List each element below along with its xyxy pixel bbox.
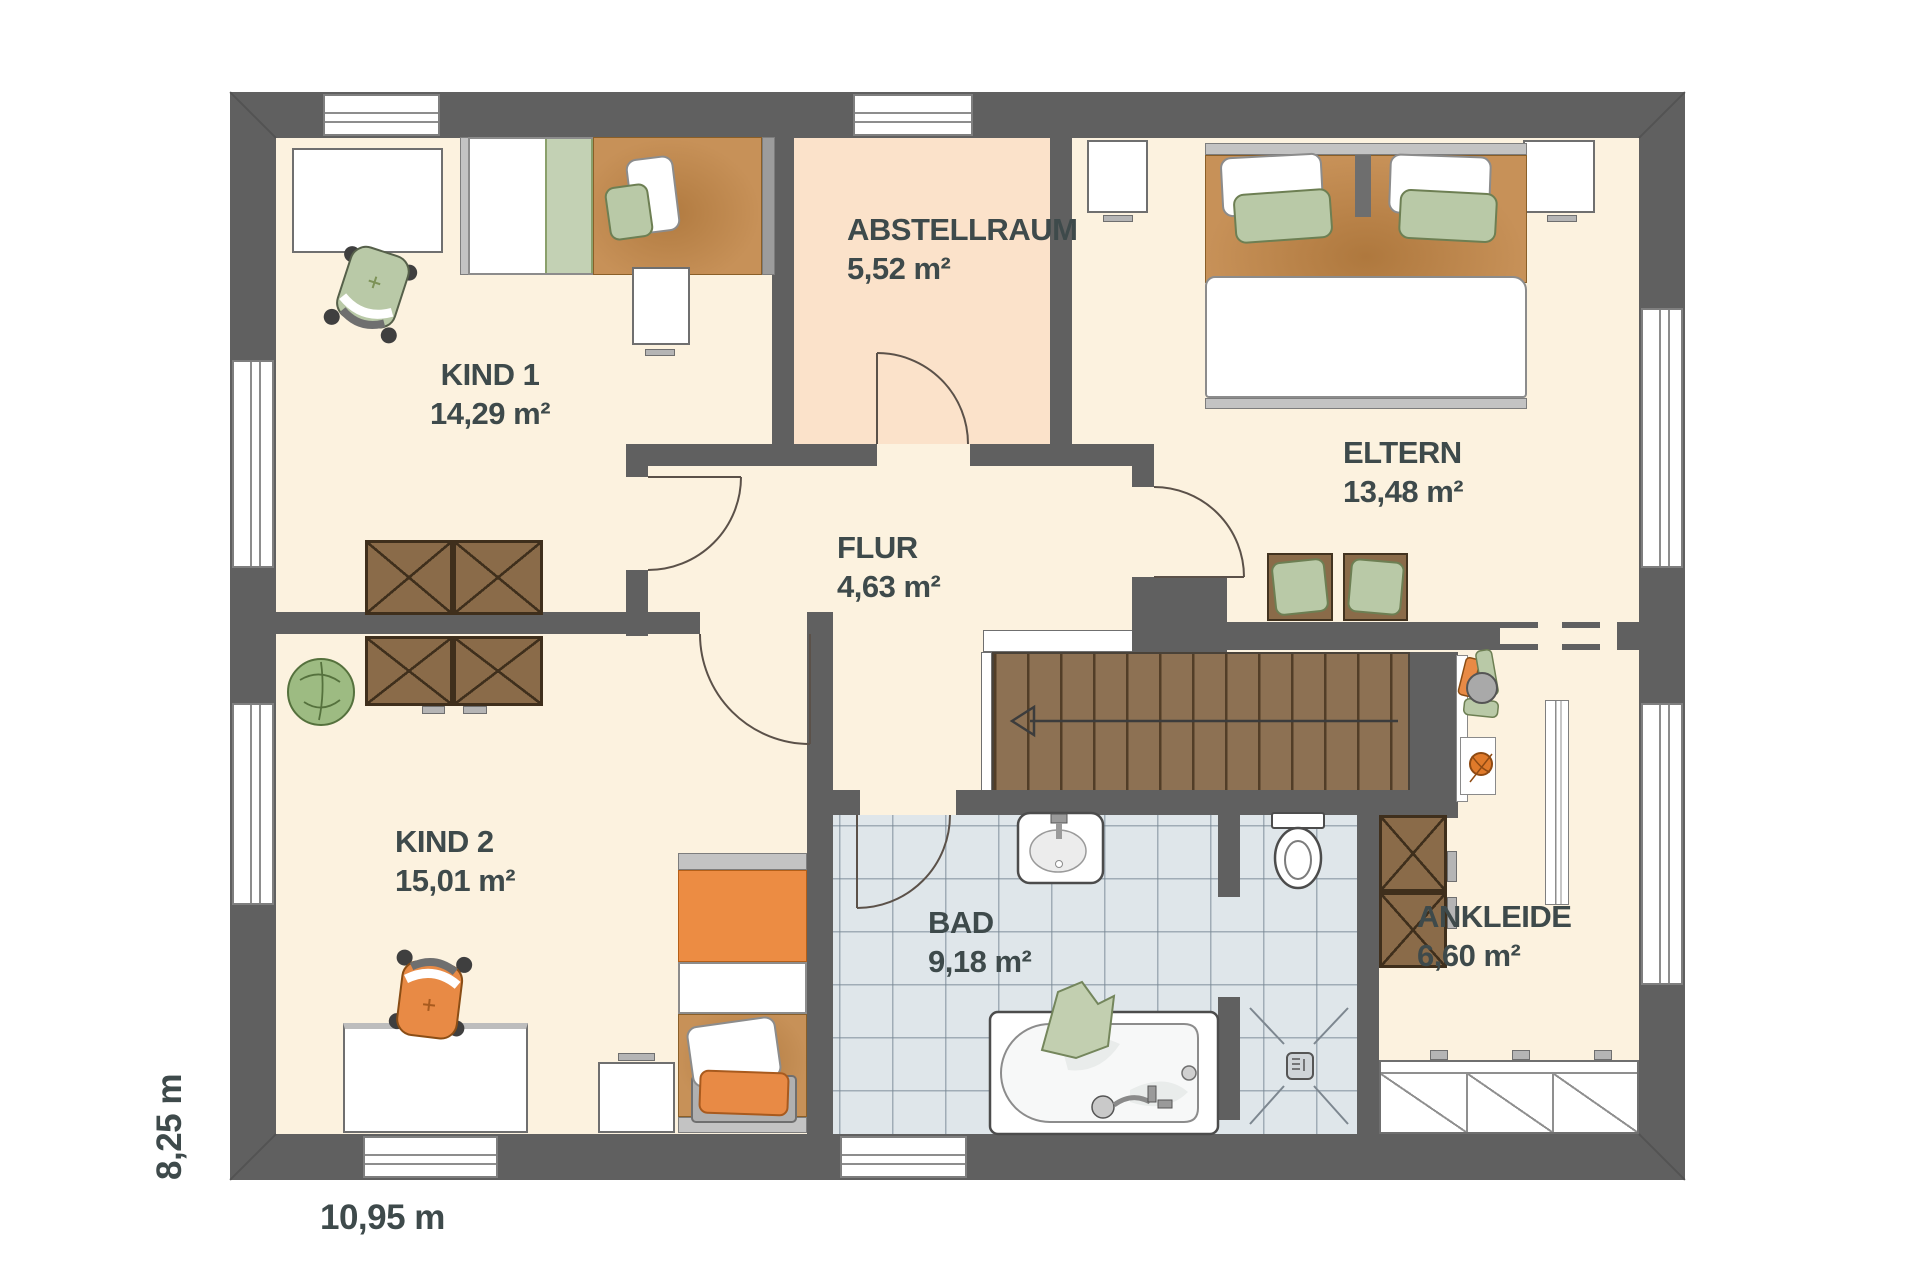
nightstand xyxy=(598,1062,675,1133)
wall xyxy=(1227,622,1500,650)
bed-headboard xyxy=(1205,143,1527,155)
mattress-divider xyxy=(1355,155,1371,217)
room-area: 13,48 m² xyxy=(1343,472,1463,511)
wardrobe-icon xyxy=(1379,815,1447,892)
room-area: 14,29 m² xyxy=(430,394,550,433)
room-name: KIND 1 xyxy=(430,355,550,394)
wardrobe-icon xyxy=(365,636,453,706)
bed xyxy=(678,962,807,1014)
wall xyxy=(1218,997,1240,1120)
wall xyxy=(956,790,1458,815)
stairs-edge xyxy=(981,652,992,792)
bed-duvet xyxy=(1205,276,1527,398)
bed-head-area xyxy=(593,137,762,275)
bed-blanket xyxy=(545,139,593,273)
window-icon xyxy=(232,703,274,905)
window-icon xyxy=(853,94,973,136)
bed-footboard xyxy=(1205,398,1527,409)
closet-door xyxy=(1381,1074,1466,1132)
wardrobe-foot xyxy=(463,706,487,714)
room-label-bad: BAD 9,18 m² xyxy=(928,903,1031,981)
wardrobe-icon xyxy=(453,540,543,615)
room-label-kind2: KIND 2 15,01 m² xyxy=(395,822,515,900)
nightstand-handle xyxy=(645,349,675,356)
staircase xyxy=(992,652,1410,792)
wall xyxy=(276,612,700,634)
room-label-abstellraum: ABSTELLRAUM 5,52 m² xyxy=(847,210,1077,288)
room-name: BAD xyxy=(928,903,1031,942)
bathroom-tile-floor xyxy=(833,815,1357,1134)
wall xyxy=(1132,466,1154,487)
wardrobe-foot xyxy=(422,706,445,714)
floor-plan: KIND 1 14,29 m² ABSTELLRAUM 5,52 m² ELTE… xyxy=(0,0,1920,1280)
wall xyxy=(1617,622,1639,650)
pouf xyxy=(1267,553,1333,621)
room-name: ABSTELLRAUM xyxy=(847,210,1077,249)
wall xyxy=(626,444,877,466)
wardrobe-icon xyxy=(365,540,453,615)
closet-handle xyxy=(1512,1050,1530,1060)
wall xyxy=(1639,92,1685,1180)
room-name: ANKLEIDE xyxy=(1417,897,1571,936)
window-icon xyxy=(1641,308,1683,568)
closet-top-band xyxy=(1381,1062,1637,1074)
desk xyxy=(343,1023,528,1133)
room-area: 6,60 m² xyxy=(1417,936,1571,975)
window-icon xyxy=(232,360,274,568)
room-label-flur: FLUR 4,63 m² xyxy=(837,528,940,606)
wall xyxy=(772,138,794,466)
plant-pot xyxy=(300,670,344,716)
dimension-width: 10,95 m xyxy=(320,1198,445,1238)
room-label-eltern: ELTERN 13,48 m² xyxy=(1343,433,1463,511)
bed-footboard xyxy=(678,1117,807,1133)
window-icon xyxy=(840,1136,967,1178)
dimension-height: 8,25 m xyxy=(150,1074,190,1180)
room-name: ELTERN xyxy=(1343,433,1463,472)
nightstand-handle xyxy=(1103,215,1133,222)
closet-handle xyxy=(1430,1050,1448,1060)
room-area: 4,63 m² xyxy=(837,567,940,606)
room-area: 5,52 m² xyxy=(847,249,1077,288)
nightstand xyxy=(1087,140,1148,213)
window-icon xyxy=(363,1136,498,1178)
window-icon xyxy=(1641,703,1683,985)
closet-door xyxy=(1552,1074,1637,1132)
nightstand xyxy=(632,267,690,345)
nightstand-handle xyxy=(1547,215,1577,222)
wall xyxy=(970,444,1154,466)
wardrobe-handle xyxy=(1447,851,1457,882)
window-icon xyxy=(323,94,440,136)
clothes-rail xyxy=(1545,700,1569,905)
wall xyxy=(1050,138,1072,466)
wall xyxy=(833,790,860,815)
pouf xyxy=(1343,553,1408,621)
wall xyxy=(230,92,276,1180)
closet-door xyxy=(1466,1074,1552,1132)
bed-headboard xyxy=(762,137,775,275)
storage-room-floor xyxy=(794,138,1050,444)
nightstand xyxy=(1523,140,1595,213)
vanity-tray xyxy=(1460,737,1496,795)
desk xyxy=(292,148,443,253)
wall xyxy=(1132,577,1227,652)
wall xyxy=(807,612,833,1134)
bed-headboard xyxy=(678,853,807,870)
wardrobe-icon xyxy=(453,636,543,706)
stairs-landing xyxy=(983,630,1143,652)
wall xyxy=(1218,815,1240,897)
bed-blanket xyxy=(678,870,807,962)
room-name: FLUR xyxy=(837,528,940,567)
bed-head-area xyxy=(678,1014,807,1117)
room-area: 15,01 m² xyxy=(395,861,515,900)
room-label-ankleide: ANKLEIDE 6,60 m² xyxy=(1417,897,1571,975)
room-label-kind1: KIND 1 14,29 m² xyxy=(430,355,550,433)
room-name: KIND 2 xyxy=(395,822,515,861)
wall xyxy=(626,466,648,477)
closet-handle xyxy=(1594,1050,1612,1060)
nightstand-handle xyxy=(618,1053,655,1061)
room-area: 9,18 m² xyxy=(928,942,1031,981)
wall xyxy=(1357,815,1379,1134)
